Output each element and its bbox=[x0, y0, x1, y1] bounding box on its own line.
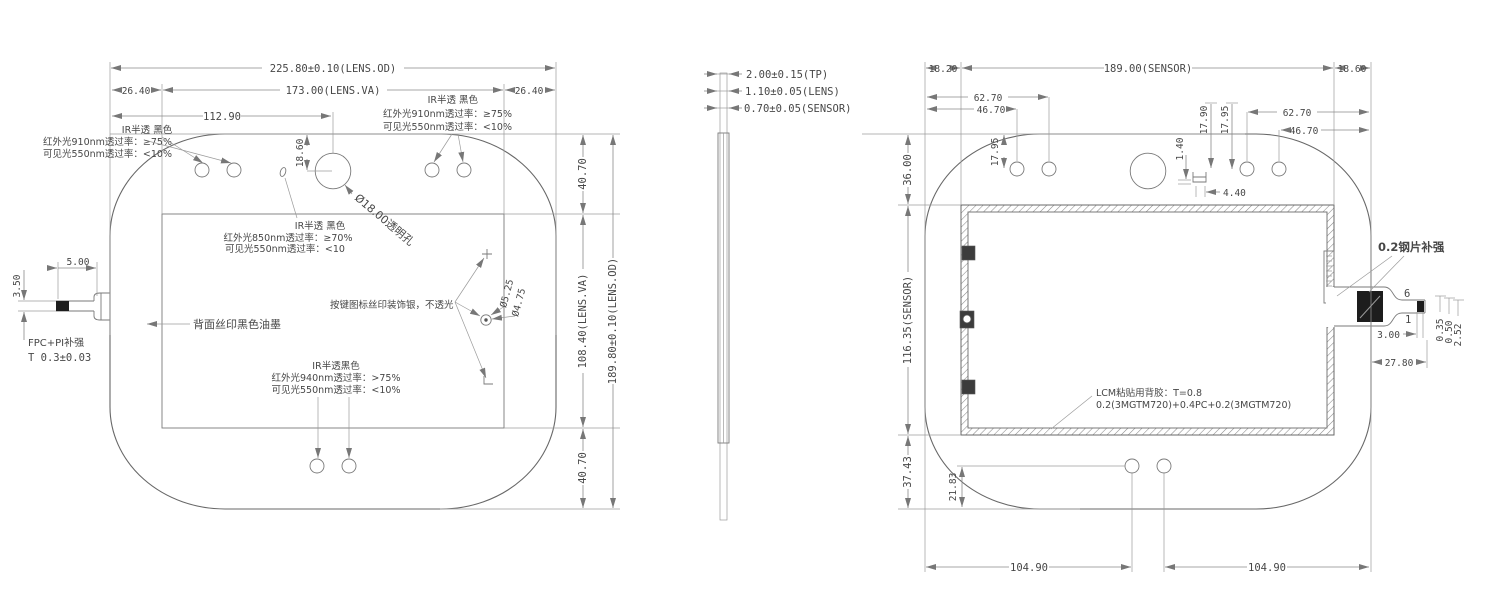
dim-label: 1.40 bbox=[1175, 137, 1186, 160]
dim-label: 104.90 bbox=[1010, 562, 1048, 574]
ir-hole bbox=[1157, 459, 1171, 473]
registration-marks bbox=[482, 249, 493, 384]
dim-bottom-hole-right: 104.90 bbox=[1165, 562, 1369, 574]
note-ir-bottom: IR半透黑色 红外光940nm透过率：>75% 可见光550nm透过率：<10% bbox=[272, 360, 401, 458]
dim-va-top: 40.70 bbox=[577, 135, 589, 213]
cad-drawing-page: 225.80±0.10(LENS.OD) 173.00(LENS.VA) 26.… bbox=[0, 0, 1497, 592]
svg-text:IR半透 黑色: IR半透 黑色 bbox=[295, 220, 346, 232]
dim-fpc-tip-thickness: 0.35 0.50 2.52 bbox=[1435, 296, 1464, 346]
svg-text:LCM粘贴用背胶：T=0.8: LCM粘贴用背胶：T=0.8 bbox=[1096, 387, 1202, 399]
dim-right-chain: 40.70 108.40(LENS.VA) 40.70 189.80±0.10(… bbox=[440, 135, 620, 509]
dim-notch-height: 1.40 bbox=[1175, 137, 1191, 184]
dim-label: 3.00 bbox=[1377, 330, 1400, 341]
dim-label: 62.70 bbox=[1283, 108, 1312, 119]
dim-lens-od-width: 225.80±0.10(LENS.OD) bbox=[110, 62, 556, 335]
svg-text:Ø18.00透明孔: Ø18.00透明孔 bbox=[352, 191, 416, 248]
svg-text:IR半透 黑色: IR半透 黑色 bbox=[122, 124, 173, 136]
dim-bottom-hole-y: 21.83 bbox=[948, 466, 1125, 507]
dim-margin-right: 26.40 bbox=[505, 86, 555, 97]
svg-text:按键图标丝印装饰银，不透光: 按键图标丝印装饰银，不透光 bbox=[330, 299, 454, 311]
dim-va-height: 108.40(LENS.VA) bbox=[577, 215, 589, 427]
svg-text:0.2(3MGTM720)+0.4PC+0.2(3MGTM7: 0.2(3MGTM720)+0.4PC+0.2(3MGTM720) bbox=[1096, 400, 1291, 411]
dim-label: 62.70 bbox=[974, 93, 1003, 104]
note-ir-center: IR半透 黑色 红外光850nm透过率：≥70% 可见光550nm透过率：<10 bbox=[224, 178, 353, 255]
sensor-window-slot bbox=[279, 167, 287, 177]
dim-label: 18.20 bbox=[929, 64, 958, 75]
dim-sensor-width: 189.00(SENSOR) bbox=[962, 63, 1333, 75]
note-ir-top-right: IR半透 黑色 红外光910nm透过率：≥75% 可见光550nm透过率：<10… bbox=[383, 94, 512, 162]
dim-fpc: 5.00 3.50 FPC+PI补强 T 0.3±0.03 bbox=[12, 257, 97, 364]
ir-hole bbox=[342, 459, 356, 473]
dim-label: 40.70 bbox=[577, 452, 589, 484]
dim-sensor-margin-left: 18.20 bbox=[926, 64, 960, 75]
svg-text:0.2钢片补强: 0.2钢片补强 bbox=[1378, 240, 1445, 254]
dim-thickness-tp: 2.00±0.15(TP) bbox=[704, 69, 828, 81]
back-ink-label: 背面丝印黑色油墨 bbox=[147, 317, 281, 331]
ir-hole bbox=[1240, 162, 1254, 176]
steel-stiffener-note: 0.2钢片补强 bbox=[1337, 240, 1445, 296]
ir-hole bbox=[425, 163, 439, 177]
dim-label: 225.80±0.10(LENS.OD) bbox=[270, 63, 396, 75]
ir-hole bbox=[310, 459, 324, 473]
dim-label: 1.10±0.05(LENS) bbox=[745, 86, 840, 98]
dim-sensor-bottom-offset: 37.43 bbox=[902, 436, 914, 508]
side-profile-view: 2.00±0.15(TP) 1.10±0.05(LENS) 0.70±0.05(… bbox=[704, 69, 851, 520]
dim-label: 112.90 bbox=[203, 111, 241, 123]
svg-text:红外光940nm透过率：>75%: 红外光940nm透过率：>75% bbox=[272, 372, 401, 384]
pin-number-last: 1 bbox=[1405, 314, 1411, 326]
dim-label: 173.00(LENS.VA) bbox=[286, 85, 381, 97]
dim-label: 3.50 bbox=[12, 274, 23, 297]
dim-thickness-lens: 1.10±0.05(LENS) bbox=[704, 86, 840, 98]
sensor-back-view: 6 1 18.20 189.00(SENSOR) 18.60 bbox=[862, 62, 1464, 574]
note-ir-top-left: IR半透 黑色 红外光910nm透过率：≥75% 可见光550nm透过率：<10… bbox=[43, 124, 231, 163]
dim-label: 2.52 bbox=[1453, 324, 1464, 347]
dim-center-hole-y: 17.95 bbox=[1220, 103, 1238, 169]
camera-hole-back bbox=[1130, 153, 1166, 189]
svg-text:红外光850nm透过率：≥70%: 红外光850nm透过率：≥70% bbox=[224, 232, 353, 244]
dim-key-hole: Ø5.25 Ø4.75 bbox=[491, 278, 528, 319]
svg-text:可见光550nm透过率：<10%: 可见光550nm透过率：<10% bbox=[272, 384, 401, 396]
svg-text:背面丝印黑色油墨: 背面丝印黑色油墨 bbox=[193, 317, 281, 331]
dim-label: 17.95 bbox=[1220, 106, 1231, 135]
dim-label: 0.70±0.05(SENSOR) bbox=[744, 103, 851, 115]
dim-label: 27.80 bbox=[1385, 358, 1414, 369]
ir-hole bbox=[1125, 459, 1139, 473]
svg-text:可见光550nm透过率：<10%: 可见光550nm透过率：<10% bbox=[383, 121, 512, 133]
dim-label: 18.60 bbox=[295, 138, 306, 167]
alignment-notch bbox=[1193, 172, 1206, 182]
ir-hole bbox=[1042, 162, 1056, 176]
dim-label: 189.80±0.10(LENS.OD) bbox=[607, 258, 619, 384]
svg-text:可见光550nm透过率：<10%: 可见光550nm透过率：<10% bbox=[43, 148, 172, 160]
dim-center-notch-y: 17.90 bbox=[1199, 103, 1217, 168]
dim-thickness-sensor: 0.70±0.05(SENSOR) bbox=[704, 103, 851, 115]
dim-fpc-tail-length: 27.80 bbox=[1372, 340, 1427, 369]
dim-label: 2.00±0.15(TP) bbox=[746, 69, 828, 81]
drawing-canvas: 225.80±0.10(LENS.OD) 173.00(LENS.VA) 26.… bbox=[0, 0, 1497, 592]
ir-hole bbox=[227, 163, 241, 177]
dim-label: 18.60 bbox=[1338, 64, 1367, 75]
dim-label: 40.70 bbox=[577, 158, 589, 190]
ir-hole bbox=[457, 163, 471, 177]
svg-text:IR半透黑色: IR半透黑色 bbox=[312, 360, 360, 372]
lens-front-view: 225.80±0.10(LENS.OD) 173.00(LENS.VA) 26.… bbox=[12, 62, 620, 509]
key-icon-note: 按键图标丝印装饰银，不透光 bbox=[330, 258, 486, 378]
fpc-thickness-label: T 0.3±0.03 bbox=[28, 352, 91, 364]
dim-label: 26.40 bbox=[515, 86, 544, 97]
dim-margin-left: 26.40 bbox=[112, 86, 161, 97]
pin-number-first: 6 bbox=[1404, 288, 1410, 300]
dim-va-bottom: 40.70 bbox=[577, 429, 589, 508]
dim-label: 36.00 bbox=[902, 154, 914, 186]
dim-label: 17.95 bbox=[990, 138, 1001, 167]
dim-label: 5.00 bbox=[67, 257, 90, 268]
dim-label: 37.43 bbox=[902, 456, 914, 488]
svg-text:IR半透 黑色: IR半透 黑色 bbox=[428, 94, 479, 106]
dim-left-hole-62: 62.70 bbox=[927, 93, 1049, 161]
dim-label: 108.40(LENS.VA) bbox=[577, 274, 589, 369]
ir-hole bbox=[195, 163, 209, 177]
dim-left-hole-46: 46.70 bbox=[927, 105, 1017, 161]
dim-label: 46.70 bbox=[1290, 126, 1319, 137]
fpc-tip-contacts bbox=[1417, 301, 1424, 312]
fpc-label: FPC+PI补强 bbox=[28, 336, 84, 349]
dim-notch-width: 4.40 bbox=[1196, 186, 1246, 199]
lens-outline bbox=[110, 134, 556, 509]
key-hole-center bbox=[484, 318, 487, 321]
dim-label: 116.35(SENSOR) bbox=[902, 276, 914, 365]
fpc-tail bbox=[56, 293, 110, 320]
fpc-stiffener bbox=[56, 301, 69, 311]
dim-sensor-top-offset: 36.00 bbox=[902, 135, 914, 204]
dim-label: 21.83 bbox=[948, 473, 959, 502]
dim-sensor-height: 116.35(SENSOR) bbox=[902, 206, 914, 434]
dim-label: 46.70 bbox=[977, 105, 1006, 116]
dim-od-height: 189.80±0.10(LENS.OD) bbox=[607, 135, 619, 508]
dim-label: 26.40 bbox=[122, 86, 151, 97]
ir-hole bbox=[1272, 162, 1286, 176]
dim-fpc-tip: 3.00 bbox=[1377, 312, 1423, 341]
dim-right-hole-46: 46.70 bbox=[1279, 126, 1369, 161]
svg-text:可见光550nm透过率：<10: 可见光550nm透过率：<10 bbox=[225, 243, 345, 255]
svg-text:红外光910nm透过率：≥75%: 红外光910nm透过率：≥75% bbox=[383, 108, 512, 120]
dim-label: 17.90 bbox=[1199, 105, 1210, 134]
ir-hole bbox=[1010, 162, 1024, 176]
camera-hole-label: Ø18.00透明孔 bbox=[345, 185, 416, 248]
dim-label: 4.40 bbox=[1223, 188, 1246, 199]
dim-label: 189.00(SENSOR) bbox=[1104, 63, 1193, 75]
dim-label: 104.90 bbox=[1248, 562, 1286, 574]
dim-sensor-margin-right: 18.60 bbox=[1335, 64, 1370, 75]
